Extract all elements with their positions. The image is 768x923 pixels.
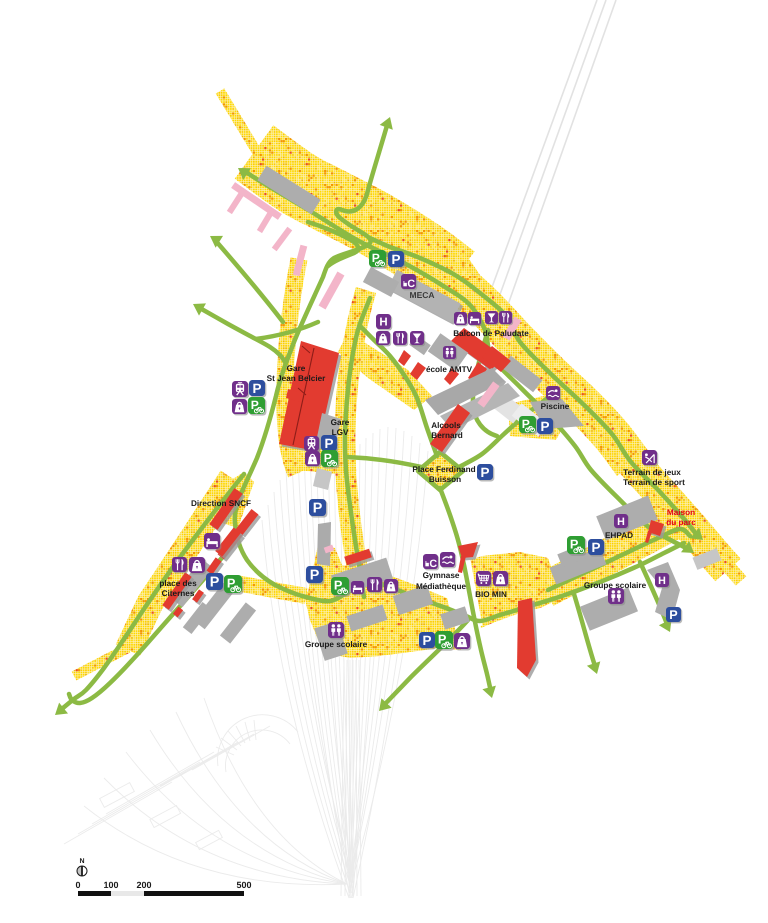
svg-text:Gymnase: Gymnase: [423, 571, 460, 580]
svg-text:200: 200: [136, 880, 151, 890]
svg-text:BIO MIN: BIO MIN: [475, 590, 507, 599]
svg-text:Citernes: Citernes: [162, 589, 195, 598]
svg-text:100: 100: [103, 880, 118, 890]
svg-text:500: 500: [236, 880, 251, 890]
svg-text:MECA: MECA: [409, 290, 434, 300]
svg-text:Bernard: Bernard: [431, 431, 462, 440]
svg-text:Direction SNCF: Direction SNCF: [191, 499, 251, 508]
svg-text:0: 0: [75, 880, 80, 890]
svg-text:LGV: LGV: [332, 428, 349, 437]
svg-text:du parc: du parc: [666, 518, 696, 527]
svg-text:place des: place des: [159, 579, 197, 588]
svg-text:Gare: Gare: [287, 364, 306, 373]
svg-text:EHPAD: EHPAD: [605, 531, 633, 540]
svg-text:école AMTV: école AMTV: [426, 365, 473, 374]
svg-text:Médiathèque: Médiathèque: [416, 582, 466, 591]
svg-text:Alcools: Alcools: [431, 421, 461, 430]
svg-text:Terrain de sport: Terrain de sport: [623, 478, 685, 487]
svg-text:Gare: Gare: [331, 418, 350, 427]
svg-text:Groupe scolaire: Groupe scolaire: [305, 640, 368, 649]
svg-text:Place Ferdinand: Place Ferdinand: [412, 465, 475, 474]
svg-text:N: N: [79, 858, 84, 865]
svg-text:Maison: Maison: [667, 508, 695, 517]
svg-text:St Jean Belcier: St Jean Belcier: [267, 374, 327, 383]
svg-text:Buisson: Buisson: [429, 475, 461, 484]
svg-text:Groupe scolaire: Groupe scolaire: [584, 581, 647, 590]
svg-text:Piscine: Piscine: [541, 402, 570, 411]
svg-text:Terrain de jeux: Terrain de jeux: [623, 468, 681, 477]
svg-text:Balcon de Paludate: Balcon de Paludate: [453, 329, 529, 338]
